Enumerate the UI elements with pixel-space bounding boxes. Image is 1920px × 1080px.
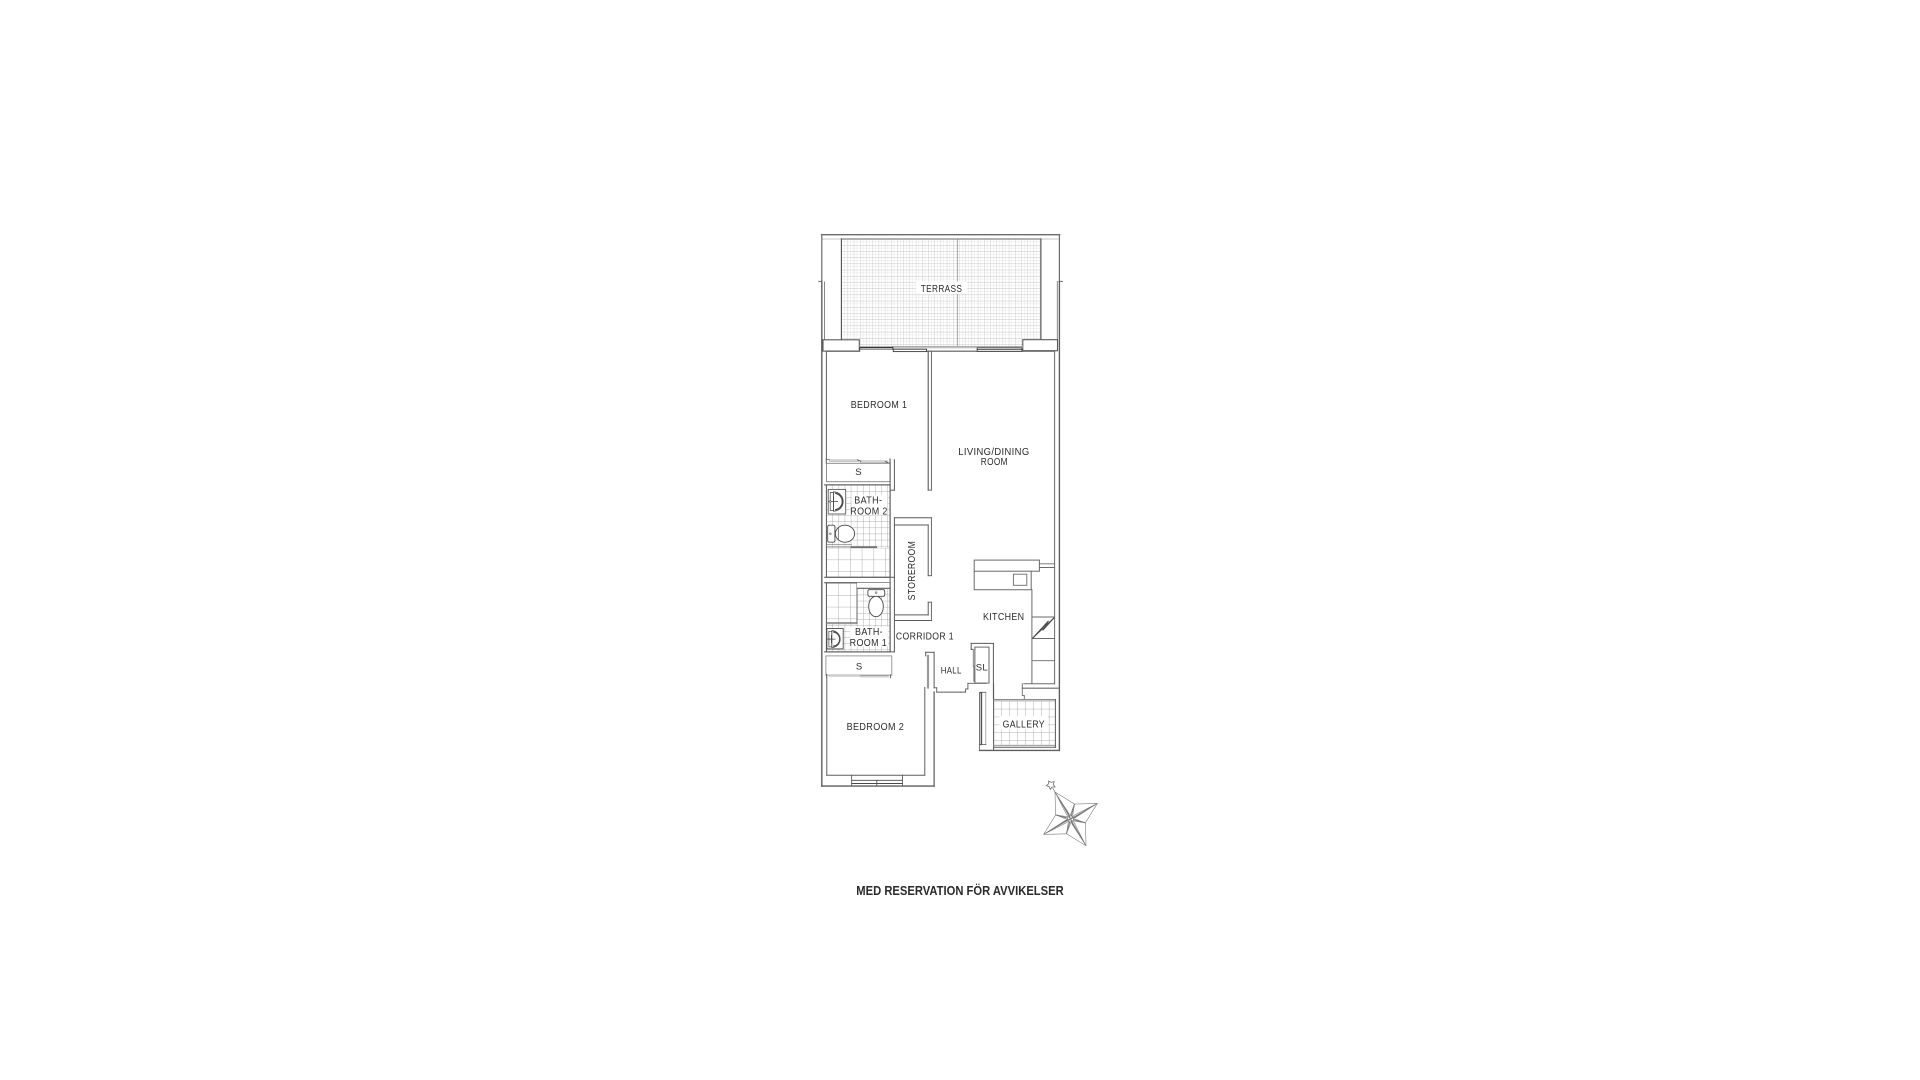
svg-text:HALL: HALL	[941, 665, 962, 676]
svg-text:ROOM 1: ROOM 1	[850, 638, 888, 649]
svg-text:BATH-: BATH-	[855, 627, 883, 638]
svg-text:BATH-: BATH-	[854, 495, 882, 506]
svg-text:CORRIDOR 1: CORRIDOR 1	[896, 632, 954, 643]
svg-text:KITCHEN: KITCHEN	[983, 612, 1025, 623]
svg-text:SL: SL	[976, 662, 988, 673]
svg-text:ROOM 2: ROOM 2	[850, 507, 888, 518]
svg-text:BEDROOM 2: BEDROOM 2	[847, 722, 905, 733]
svg-text:MED RESERVATION FÖR AVVIKELSER: MED RESERVATION FÖR AVVIKELSER	[856, 883, 1064, 898]
svg-text:S: S	[856, 661, 863, 672]
svg-text:LIVING/DINING: LIVING/DINING	[958, 447, 1029, 458]
svg-text:BEDROOM 1: BEDROOM 1	[851, 400, 908, 411]
svg-text:STOREROOM: STOREROOM	[907, 541, 918, 601]
svg-text:ROOM: ROOM	[981, 457, 1008, 468]
svg-text:GALLERY: GALLERY	[1003, 719, 1045, 730]
svg-text:S: S	[855, 467, 862, 478]
svg-text:TERRASS: TERRASS	[921, 284, 963, 295]
